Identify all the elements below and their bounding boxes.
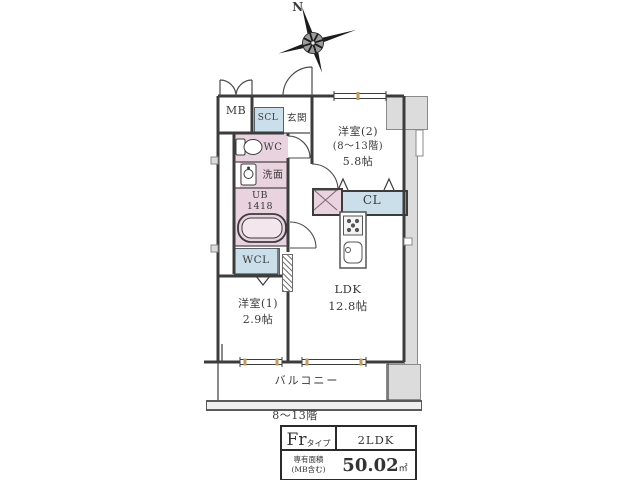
room-label-senmen: 洗面 [258, 169, 288, 182]
area-value-cell: 50.02㎡ [335, 455, 415, 476]
type-value: Fr [287, 430, 307, 450]
room-label-ldk: LDK 12.8帖 [318, 281, 378, 316]
area-label: 専有面積 (MB含む) [282, 455, 335, 475]
structure-bottomright-block [386, 364, 421, 400]
kitchen-counter [340, 212, 366, 268]
entrance-door-arc [283, 67, 312, 96]
pipe-space-box [312, 188, 343, 216]
ldk-name: LDK [318, 281, 378, 298]
cl-folding-marks [338, 179, 394, 190]
bedroom2-floors: (8～13階) [312, 140, 404, 155]
bedroom2-size: 5.8帖 [312, 154, 404, 170]
room-label-balcony: バルコニー [262, 374, 352, 388]
room-label-cl: CL [340, 193, 404, 209]
wc-door-arc [288, 136, 310, 158]
sink-icon [344, 242, 362, 263]
area-value: 50.02 [342, 455, 398, 476]
sliding-door [282, 254, 293, 292]
stove-icon [344, 216, 363, 235]
room-label-genkan: 玄関 [282, 113, 312, 125]
room-label-bedroom1: 洋室(1) 2.9帖 [226, 296, 290, 328]
bedroom1-name: 洋室(1) [226, 296, 290, 312]
room-label-scl: SCL [254, 113, 282, 125]
wcl-folding-mark [256, 276, 270, 285]
info-table-row-area: 専有面積 (MB含む) 50.02㎡ [280, 449, 417, 480]
type-suffix: タイプ [306, 438, 330, 449]
bedroom1-size: 2.9帖 [226, 312, 290, 328]
room-label-wc: WC [260, 141, 286, 154]
area-label-line2: (MB含む) [282, 465, 335, 475]
area-label-line1: 専有面積 [282, 455, 335, 465]
structure-right-strip [404, 96, 418, 402]
room-label-mb: MB [220, 104, 252, 118]
compass-icon [267, 0, 365, 83]
bedroom2-name: 洋室(2) [312, 124, 404, 140]
window-balcony-right [302, 357, 366, 367]
room-label-bedroom2: 洋室(2) (8～13階) 5.8帖 [312, 124, 404, 170]
ldk-size: 12.8帖 [318, 298, 378, 315]
floor-plan-canvas: N MB SCL 玄関 WC 洗面 UB 1418 WCL 洋室(2) (8～1… [0, 0, 640, 480]
layout-value: 2LDK [358, 433, 395, 447]
area-unit: ㎡ [399, 464, 408, 474]
room-label-wcl: WCL [234, 254, 278, 268]
ub-label-line2: 1418 [240, 202, 280, 213]
ldk-door-arc [290, 222, 316, 248]
compass-north-label: N [288, 0, 308, 16]
window-balcony-left [240, 357, 282, 367]
mb-double-door-arcs [220, 80, 252, 96]
window-top [334, 91, 386, 101]
room-label-ub: UB 1418 [240, 191, 280, 213]
floor-note: 8～13階 [250, 409, 340, 423]
